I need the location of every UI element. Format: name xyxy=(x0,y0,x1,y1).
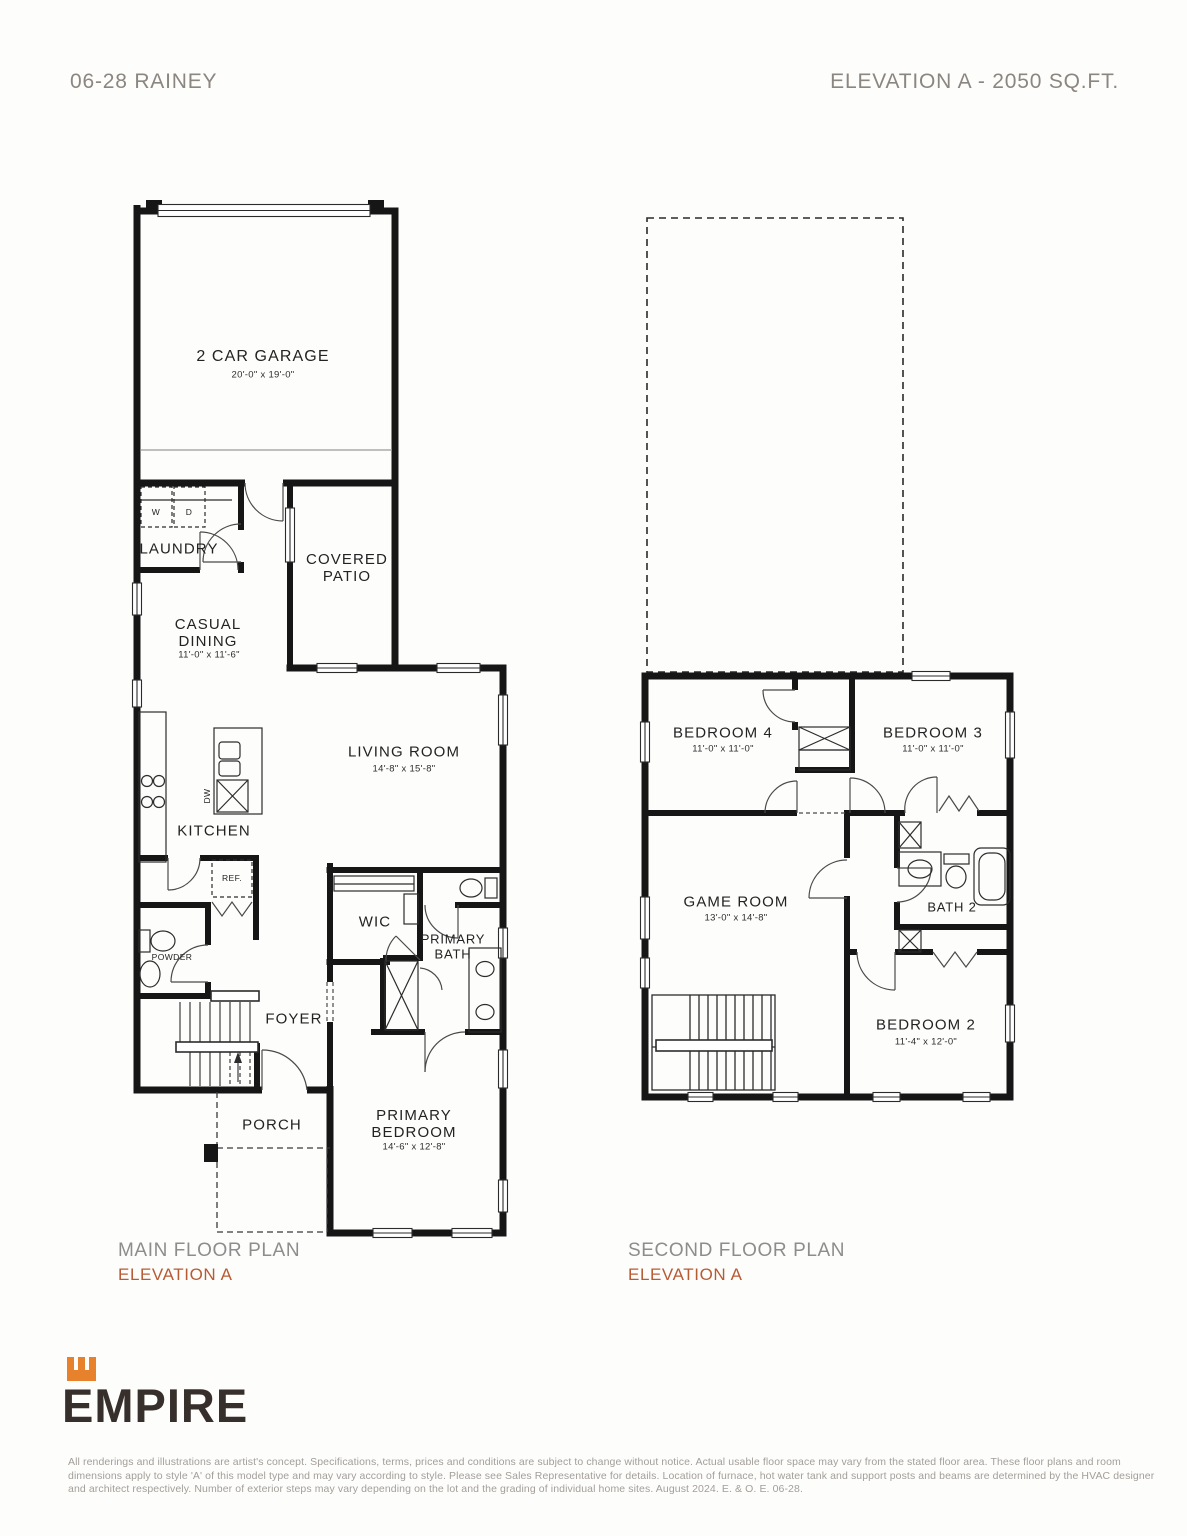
roof-outline-dashed xyxy=(647,218,903,672)
appliance-label-fridge: REF. xyxy=(222,873,242,883)
second-stairs xyxy=(652,995,775,1090)
empire-logo-text: EMPIRE xyxy=(62,1382,248,1429)
appliance-label-dryer: D xyxy=(186,507,193,517)
room-dims-primary-bedroom: 14'-6" x 12'-8" xyxy=(383,1142,446,1153)
room-label-living-room: LIVING ROOM xyxy=(348,744,460,761)
room-dims-casual-dining: 11'-0" x 11'-6" xyxy=(178,650,240,661)
floorplan-page: 06-28 RAINEY ELEVATION A - 2050 SQ.FT. xyxy=(0,0,1187,1536)
second-floor-caption-elevation: ELEVATION A xyxy=(628,1265,845,1285)
room-label-primary-bedroom: PRIMARY BEDROOM xyxy=(359,1108,469,1142)
room-label-casual-dining: CASUAL DINING xyxy=(168,617,248,651)
appliance-label-dishwasher: DW xyxy=(202,789,212,804)
garage-door xyxy=(141,200,392,450)
room-label-bath2: BATH 2 xyxy=(927,900,976,915)
room-label-covered-patio: COVERED PATIO xyxy=(297,552,397,586)
room-label-bedroom3: BEDROOM 3 xyxy=(883,725,983,742)
porch-post xyxy=(204,1144,218,1162)
main-floor-caption-title: MAIN FLOOR PLAN xyxy=(118,1240,300,1262)
room-dims-bedroom4: 11'-0" x 11'-0" xyxy=(692,744,754,755)
second-floor-caption: SECOND FLOOR PLAN ELEVATION A xyxy=(628,1240,845,1285)
room-dims-living-room: 14'-8" x 15'-8" xyxy=(373,764,436,775)
second-floor-fixtures xyxy=(799,727,1010,952)
floor-plan-drawing xyxy=(0,0,1187,1536)
disclaimer-text: All renderings and illustrations are art… xyxy=(68,1456,1172,1497)
room-label-wic: WIC xyxy=(359,914,391,931)
room-label-bedroom2: BEDROOM 2 xyxy=(876,1017,976,1034)
room-label-game-room: GAME ROOM xyxy=(684,894,789,911)
room-dims-bedroom2: 11'-4" x 12'-0" xyxy=(895,1037,957,1048)
empire-crown-icon xyxy=(67,1356,97,1381)
room-label-primary-bath: PRIMARY BATH xyxy=(413,932,493,961)
room-label-kitchen: KITCHEN xyxy=(177,823,251,840)
room-label-bedroom4: BEDROOM 4 xyxy=(673,725,773,742)
room-dims-garage: 20'-0" x 19'-0" xyxy=(232,370,295,381)
main-floor-caption: MAIN FLOOR PLAN ELEVATION A xyxy=(118,1240,300,1285)
main-stairs xyxy=(176,991,259,1086)
room-label-powder: POWDER xyxy=(152,952,193,962)
room-label-laundry: LAUNDRY xyxy=(139,541,218,558)
appliance-label-washer: W xyxy=(152,507,160,517)
room-dims-game-room: 13'-0" x 14'-8" xyxy=(705,913,768,924)
room-dims-bedroom3: 11'-0" x 11'-0" xyxy=(902,744,964,755)
main-floor-caption-elevation: ELEVATION A xyxy=(118,1265,300,1285)
empire-logo: EMPIRE xyxy=(62,1356,248,1429)
room-label-foyer: FOYER xyxy=(265,1011,322,1028)
second-floor-caption-title: SECOND FLOOR PLAN xyxy=(628,1240,845,1262)
room-label-garage: 2 CAR GARAGE xyxy=(196,348,329,366)
room-label-porch: PORCH xyxy=(242,1117,302,1134)
porch-outline xyxy=(217,1092,330,1232)
